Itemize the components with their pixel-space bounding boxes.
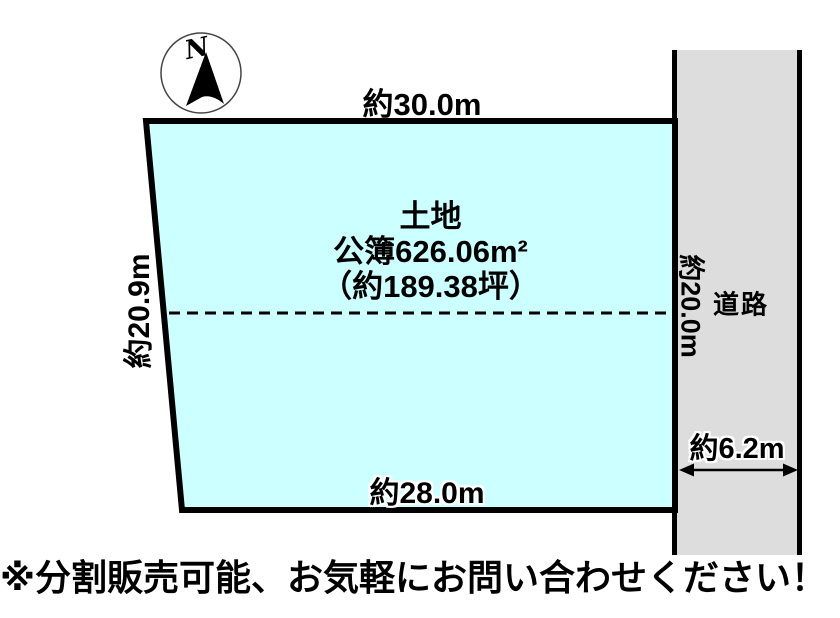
parcel-info-block: 土地 公簿626.06m² （約189.38坪） [278,199,583,304]
road-width-label: 約6.2m [689,425,784,467]
dimension-left: 約20.9m [114,253,158,368]
road-label: 道路 [713,285,769,322]
dimension-right: 約20.0m [674,254,713,358]
land-parcel [146,121,675,510]
dimension-top: 約30.0m [272,79,572,124]
parcel-title: 土地 [278,199,583,234]
sales-note: ※分割販売可能、お気軽にお問い合わせください！ [0,549,806,601]
parcel-area-tsubo: （約189.38坪） [278,269,583,304]
parcel-area-registered: 公簿626.06m² [278,234,583,269]
land-plot-diagram: N 約30.0m 約20.9m 約20.0m 約28.0m 土地 公簿626.0… [0,0,840,618]
dimension-bottom: 約28.0m [277,468,577,512]
